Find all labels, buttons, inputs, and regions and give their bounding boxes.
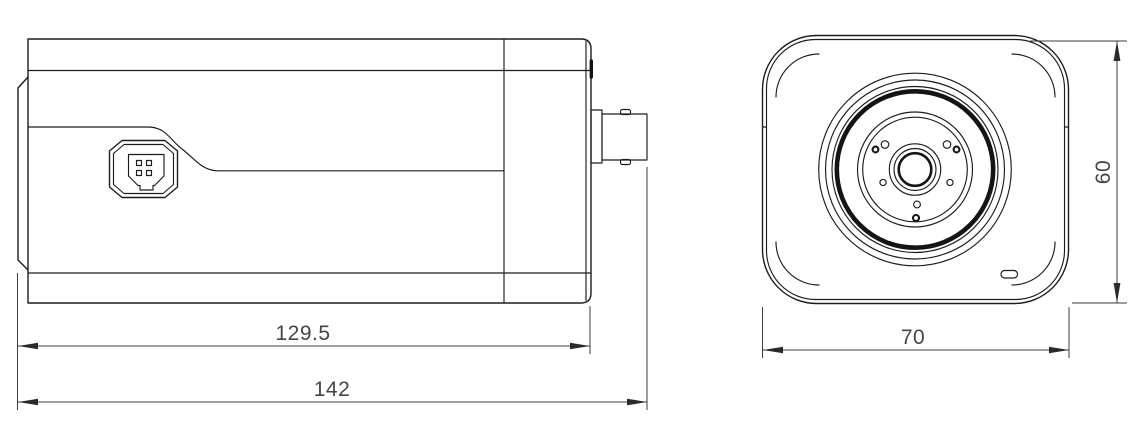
bnc-barrel [602,114,647,160]
lens-ring-inner [894,149,936,191]
side-view-dimensions: 129.5 142 [18,167,648,410]
connector-pin [147,161,152,166]
lens-ring-outer [889,144,940,195]
bnc-connector [591,110,647,165]
connector-pin [147,171,152,176]
dim-body-length-text: 129.5 [275,322,330,345]
screw-hole [914,201,921,208]
dimension-arrow [763,347,783,354]
lens-aperture [899,153,932,186]
dimension-arrow [18,399,38,406]
housing-curve-line [28,127,504,171]
lens-mount-rings [819,73,1012,266]
gasket-ring [837,91,993,247]
dimension-arrow [570,343,590,350]
front-view-dimensions: 70 60 [763,41,1128,358]
screw-hole [943,141,951,149]
corner-arc-top-left [776,54,819,97]
front-face-inner [767,40,1065,300]
dimension-arrow [627,399,647,406]
dimension-arrow [1114,41,1121,61]
lens-mount-flange [18,77,28,270]
corner-arc-top-right [1012,54,1055,97]
lens-plate-outer [858,112,973,227]
lens-plate-inner [863,117,968,222]
bnc-flange [591,110,602,163]
screw-hole [880,179,886,185]
screw-hole-bold [913,215,919,221]
corner-arc-bottom-left [776,242,819,285]
dim-height-text: 60 [1092,160,1115,184]
aux-connector-outer [110,141,178,198]
corner-arc-bottom-right [1012,242,1055,285]
screw-hole [947,179,953,185]
front-view: 70 60 [763,36,1128,359]
technical-drawing: 129.5 142 [0,0,1145,430]
led-slot [1001,271,1018,279]
connector-pin [137,171,142,176]
dim-width-text: 70 [901,326,925,349]
mount-ring-mid [826,80,1005,259]
connector-pin [137,161,142,166]
mount-ring-inner [832,87,998,253]
dimension-arrow [18,343,38,350]
dim-total-length-text: 142 [314,378,351,401]
dimension-arrow [1114,283,1121,303]
aux-connector [110,141,178,198]
screw-hole [881,141,889,149]
mount-ring-outer [819,73,1012,266]
screw-hole-bold [873,147,879,153]
drawing-canvas: 129.5 142 [0,0,1145,430]
side-view: 129.5 142 [18,39,648,410]
screw-hole-bold [954,147,960,153]
dimension-arrow [1049,347,1069,354]
front-face-outer [763,36,1069,304]
